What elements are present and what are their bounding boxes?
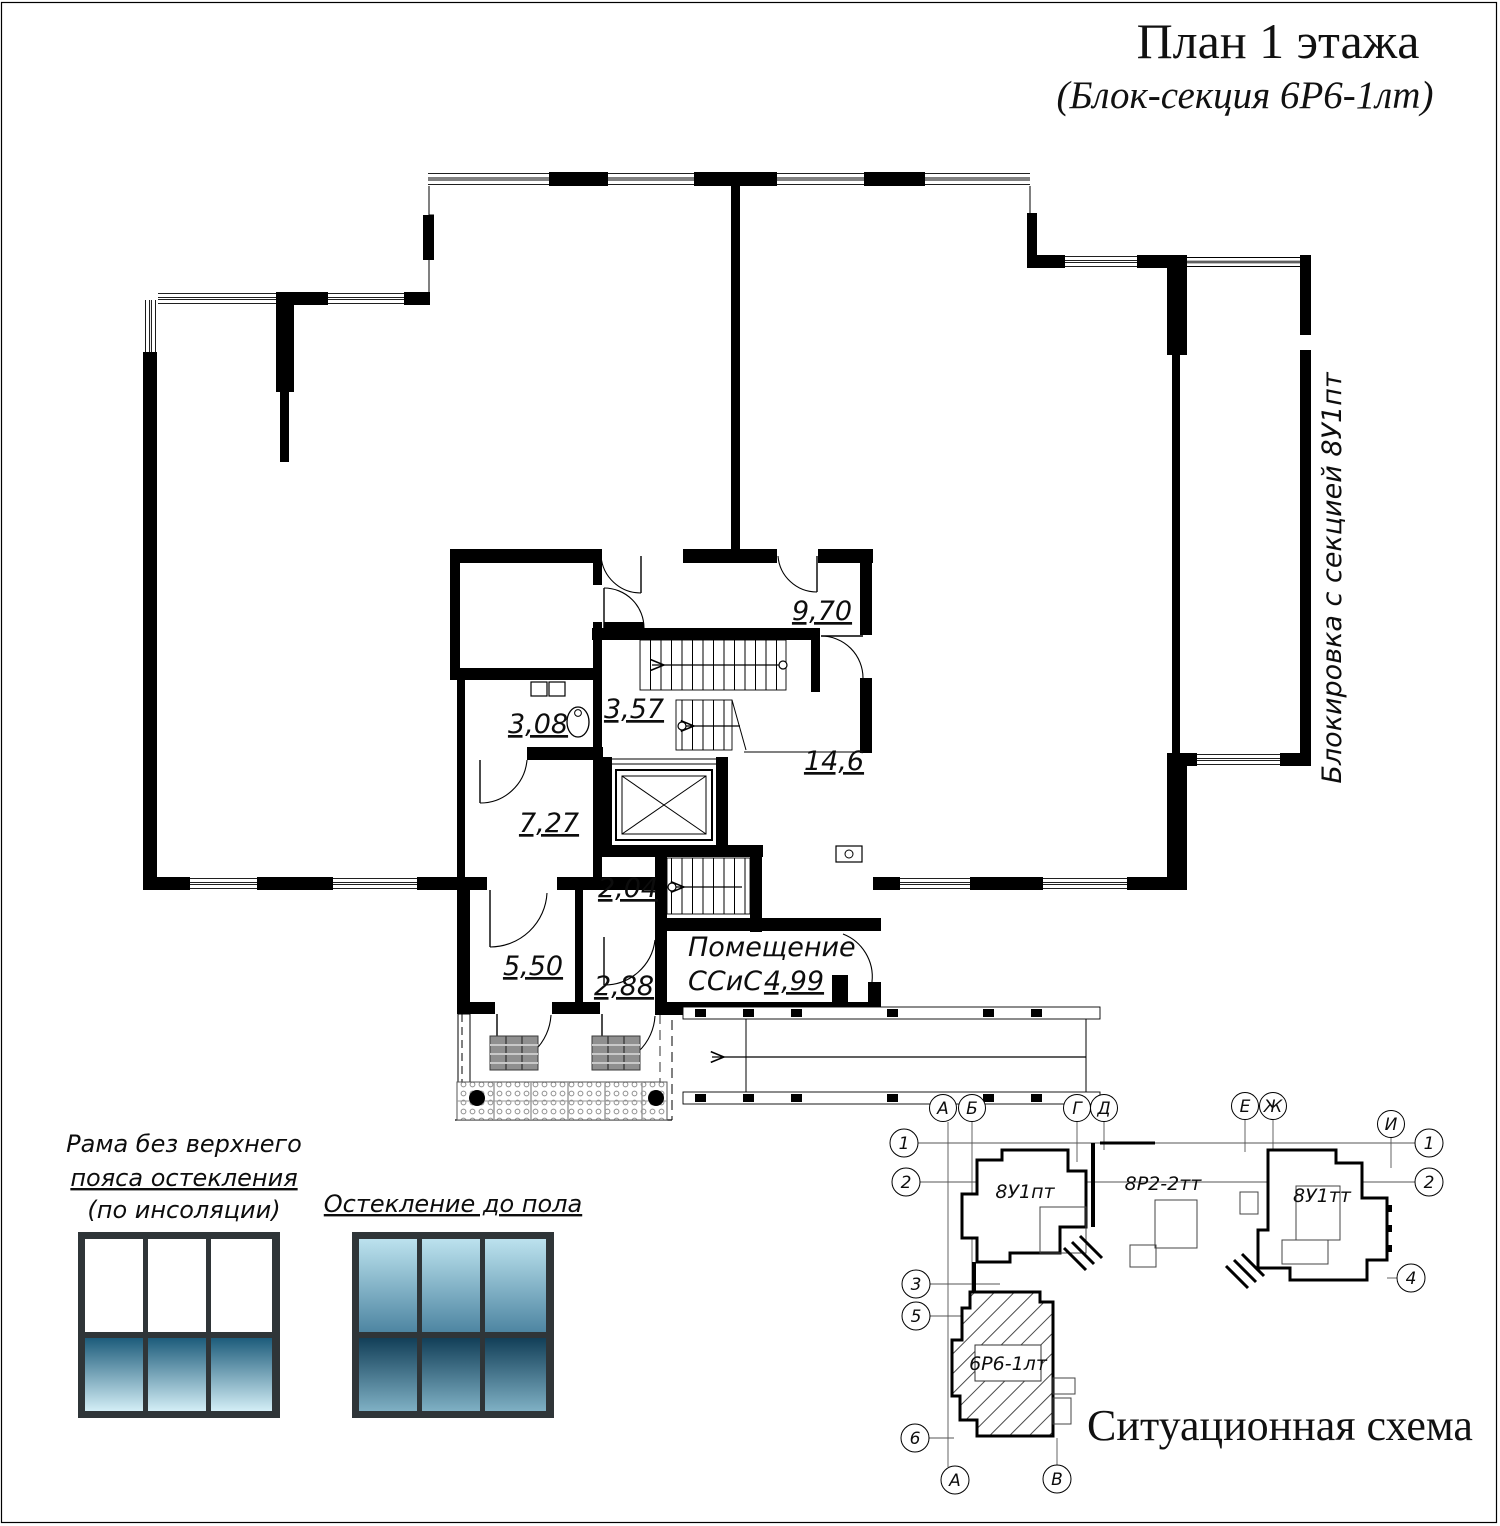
legend-item1-line1: Рама без верхнего	[66, 1130, 302, 1158]
svg-text:2: 2	[901, 1173, 912, 1193]
porch-column	[648, 1090, 664, 1106]
axis-circle-g-top: Г	[1064, 1095, 1091, 1122]
electrical-panel-icon	[836, 846, 862, 862]
wall-joint-notch	[1300, 335, 1306, 350]
axis-circle-6: 6	[901, 1424, 929, 1452]
page-title: План 1 этажа	[1137, 13, 1420, 69]
svg-text:Г: Г	[1072, 1099, 1083, 1119]
room-label-hall-left: 7,27	[519, 808, 579, 839]
title-block: План 1 этажа (Блок-секция 6Р6-1лт)	[1057, 13, 1434, 117]
svg-text:1: 1	[1424, 1134, 1435, 1154]
axis-circle-2-left: 2	[892, 1168, 920, 1196]
svg-text:6: 6	[910, 1429, 921, 1449]
scheme-label-block1: 8У1пт	[995, 1181, 1055, 1203]
scheme-block2-entrance	[1130, 1245, 1156, 1267]
legend-item2-label: Остекление до пола	[324, 1190, 582, 1218]
scheme-label-block3: 8У1тт	[1293, 1185, 1352, 1207]
room-label-wc: 3,08	[508, 709, 568, 740]
room-label-hall-right: 14,6	[804, 746, 864, 777]
axis-circle-v-bottom: В	[1043, 1465, 1071, 1493]
room-label-sscs-name: Помещение	[688, 932, 856, 963]
entrance-porch	[455, 1004, 672, 1120]
svg-text:1: 1	[899, 1134, 910, 1154]
scheme-block4-entrance1	[1053, 1378, 1075, 1394]
legend-item1-line3: (по инсоляции)	[87, 1196, 280, 1224]
axis-circle-1-right: 1	[1415, 1129, 1443, 1157]
room-label-sscs-area: 4,99	[764, 966, 824, 997]
svg-text:Д: Д	[1096, 1099, 1110, 1119]
porch-column	[469, 1090, 485, 1106]
svg-text:И: И	[1385, 1115, 1398, 1135]
axis-circle-2-right: 2	[1415, 1168, 1443, 1196]
blocking-note: Блокировка с секцией 8У1пт	[1317, 371, 1348, 783]
legend-window-full-glazing	[352, 1232, 554, 1418]
drawing-sheet: 9,70 3,57 3,08 14,6 7,27 2,04 5,50 2,88 …	[0, 0, 1500, 1526]
axis-circle-i-top: И	[1378, 1111, 1405, 1138]
axis-circle-4: 4	[1397, 1264, 1425, 1292]
axis-circle-e-top: Е	[1232, 1093, 1259, 1120]
scheme-label-block2: 8Р2-2тт	[1125, 1173, 1203, 1195]
legend-window-partial-glazing	[78, 1232, 280, 1418]
room-label-vestibule1: 5,50	[503, 951, 563, 982]
svg-text:5: 5	[911, 1307, 922, 1327]
elevator	[612, 759, 716, 840]
room-label-stairs: 3,57	[604, 694, 664, 725]
page-subtitle: (Блок-секция 6Р6-1лт)	[1057, 74, 1434, 117]
axis-circle-5: 5	[902, 1302, 930, 1330]
floor-plan: 9,70 3,57 3,08 14,6 7,27 2,04 5,50 2,88 …	[143, 172, 1348, 1120]
scheme-block-8u1pt	[962, 1150, 1086, 1262]
svg-text:А: А	[936, 1099, 949, 1119]
svg-text:3: 3	[911, 1275, 922, 1295]
scheme-caption: Ситуационная схема	[1087, 1401, 1473, 1450]
axis-circle-1-left: 1	[890, 1129, 918, 1157]
axis-circle-3: 3	[902, 1270, 930, 1298]
scheme-junction2	[1240, 1192, 1258, 1214]
entrance-mat	[592, 1036, 640, 1070]
scheme-block4-entrance2	[1053, 1398, 1071, 1424]
axis-circle-a-top: А	[930, 1095, 957, 1122]
svg-text:А: А	[948, 1471, 961, 1491]
scheme-label-block4: 6Р6-1лт	[969, 1353, 1048, 1375]
axis-circle-zh-top: Ж	[1260, 1093, 1287, 1120]
legend: Рама без верхнего пояса остекления (по и…	[66, 1130, 582, 1418]
axis-circle-d-top: Д	[1091, 1095, 1118, 1122]
svg-text:В: В	[1051, 1470, 1063, 1490]
legend-item1-line2: пояса остекления	[70, 1164, 297, 1192]
scheme-block-8u1tt	[1258, 1150, 1387, 1280]
entrance-ramp	[683, 1007, 1100, 1104]
room-label-lobby: 2,04	[598, 873, 658, 904]
situational-scheme: 8У1пт 8Р2-2тт 8У1тт 6Р6-1лт А Б Г Д Е Ж …	[890, 1093, 1473, 1495]
scheme-block2-inner	[1155, 1200, 1197, 1248]
room-label-corridor: 9,70	[792, 596, 852, 627]
entrance-mat	[490, 1036, 538, 1070]
door-opening	[593, 585, 602, 622]
scheme-block1-entrance-icon	[1064, 1236, 1102, 1270]
svg-text:2: 2	[1424, 1173, 1435, 1193]
svg-text:4: 4	[1406, 1269, 1417, 1289]
svg-text:Е: Е	[1240, 1097, 1251, 1117]
svg-text:Б: Б	[966, 1099, 978, 1119]
room-label-vestibule2: 2,88	[594, 971, 654, 1002]
svg-text:Ж: Ж	[1263, 1097, 1283, 1117]
room-label-sscs-abbr: ССиС	[688, 966, 762, 997]
axis-circle-a-bottom: А	[941, 1466, 969, 1494]
axis-circle-b-top: Б	[959, 1095, 986, 1122]
